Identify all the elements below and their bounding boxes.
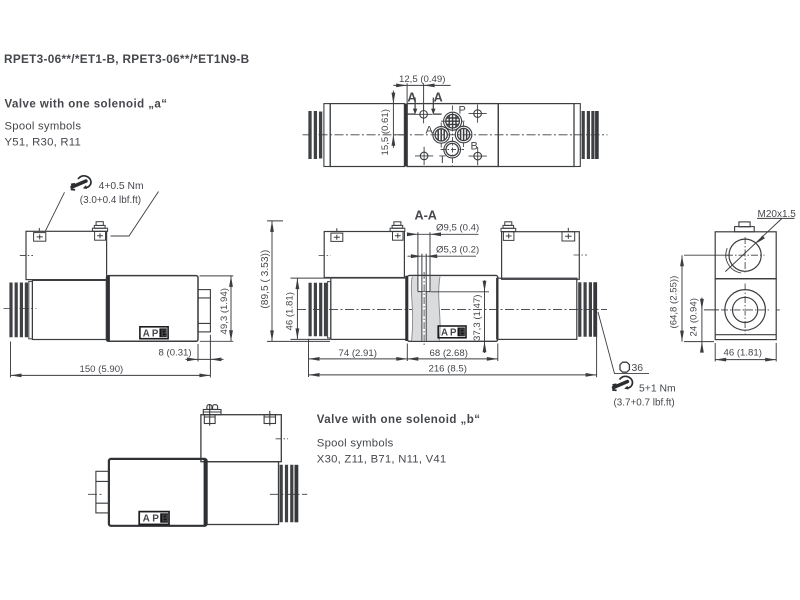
svg-text:12,5 (0.49): 12,5 (0.49) [399,74,445,85]
svg-text:P: P [450,327,457,338]
svg-text:B: B [162,514,169,525]
svg-text:74 (2.91): 74 (2.91) [339,348,377,359]
svg-text:Valve with one solenoid „a“: Valve with one solenoid „a“ [5,99,168,111]
svg-text:36: 36 [632,363,644,374]
svg-text:(3.7+0.7 lbf.ft): (3.7+0.7 lbf.ft) [614,397,675,408]
svg-text:68 (2.68): 68 (2.68) [430,348,468,359]
svg-text:A: A [441,327,448,338]
svg-text:P: P [459,105,466,117]
svg-text:24 (0.94): 24 (0.94) [688,298,699,336]
svg-text:T: T [439,154,446,166]
svg-text:B: B [161,328,168,339]
svg-text:A: A [143,514,150,525]
svg-text:49,3 (1.94): 49,3 (1.94) [219,288,230,334]
svg-text:46 (1.81): 46 (1.81) [724,348,762,359]
svg-text:Ø9,5 (0.4): Ø9,5 (0.4) [436,223,479,234]
svg-text:X30, Z11, B71, N11, V41: X30, Z11, B71, N11, V41 [317,454,447,466]
svg-text:A: A [434,91,443,105]
svg-text:15,5 (0.61): 15,5 (0.61) [380,109,391,155]
svg-text:46 (1.81): 46 (1.81) [284,292,295,330]
svg-text:5+1 Nm: 5+1 Nm [639,384,676,395]
svg-text:RPET3-06**/*ET1-B, RPET3-06**/: RPET3-06**/*ET1-B, RPET3-06**/*ET1N9-B [4,52,249,66]
svg-text:P: P [152,328,159,339]
svg-text:8 (0.31): 8 (0.31) [159,348,192,359]
svg-text:(64,8 (2.55)): (64,8 (2.55)) [668,276,679,329]
svg-text:37,3 (1.47): 37,3 (1.47) [472,295,483,341]
svg-text:Spool symbols: Spool symbols [317,438,394,450]
svg-text:A: A [426,125,434,137]
svg-text:B: B [459,327,466,338]
svg-text:150 (5.90): 150 (5.90) [80,364,124,375]
svg-text:(89,5 ( 3.53)): (89,5 ( 3.53)) [260,250,271,309]
svg-text:P: P [152,514,159,525]
svg-text:(3.0+0.4 lbf.ft): (3.0+0.4 lbf.ft) [80,195,141,206]
svg-text:Ø5,3 (0.2): Ø5,3 (0.2) [436,245,479,256]
svg-text:4+0.5 Nm: 4+0.5 Nm [99,181,144,192]
svg-text:A-A: A-A [415,208,437,222]
svg-text:Valve with one solenoid „b“: Valve with one solenoid „b“ [317,414,481,426]
svg-text:B: B [471,141,478,153]
svg-text:Y51, R30, R11: Y51, R30, R11 [5,136,82,148]
svg-text:A: A [143,328,150,339]
svg-text:216 (8.5): 216 (8.5) [429,364,467,375]
svg-text:Spool symbols: Spool symbols [5,120,82,132]
